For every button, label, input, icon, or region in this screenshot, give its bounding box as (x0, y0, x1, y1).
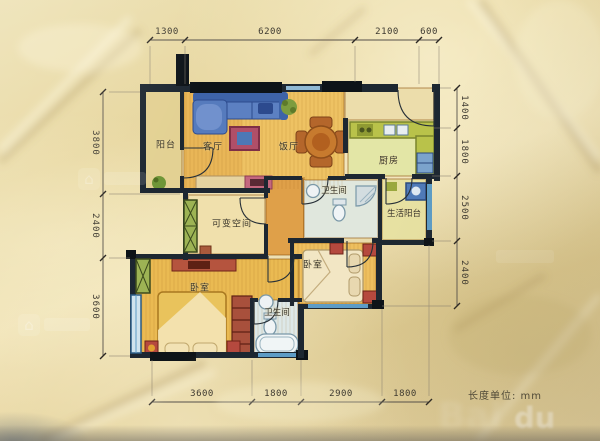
unit-note: 长度单位: mm (468, 387, 542, 402)
dim-right-4: 2400 (459, 260, 469, 286)
room-label-flex-space: 可变空间 (212, 217, 252, 230)
room-label-dining: 饭厅 (279, 140, 299, 153)
dim-left-3: 3600 (90, 294, 100, 320)
dim-top-1: 1300 (155, 27, 179, 37)
dim-bottom-3: 2900 (329, 389, 353, 399)
room-label-living: 客厅 (203, 140, 223, 153)
dim-right-3: 2500 (459, 195, 469, 221)
dim-right-2: 1800 (459, 139, 469, 165)
room-label-service-balcony: 生活阳台 (387, 207, 421, 219)
floorplan-photo: ⌂ ⌂ Bai du 阳台 客厅 饭厅 厨房 卫生间 生活阳台 可变空间 卧室 … (0, 0, 600, 441)
dim-right-1: 1400 (459, 95, 469, 121)
room-label-bath-upper: 卫生间 (321, 184, 347, 196)
room-label-bedroom-right: 卧室 (303, 258, 323, 271)
photo-corner-shadow (0, 411, 90, 441)
dim-left-2: 2400 (90, 213, 100, 239)
room-label-bedroom-master: 卧室 (190, 281, 210, 294)
dim-top-3: 2100 (375, 27, 399, 37)
dim-top-2: 6200 (258, 27, 282, 37)
room-label-kitchen: 厨房 (379, 154, 399, 167)
dim-left-1: 3800 (90, 130, 100, 156)
dim-bottom-4: 1800 (393, 389, 417, 399)
room-label-bath-lower: 卫生间 (264, 306, 290, 318)
dim-bottom-1: 3600 (190, 389, 214, 399)
photo-edge-shadow (0, 425, 600, 441)
dim-top-4: 600 (420, 27, 438, 37)
room-label-balcony: 阳台 (156, 138, 176, 151)
dim-bottom-2: 1800 (264, 389, 288, 399)
